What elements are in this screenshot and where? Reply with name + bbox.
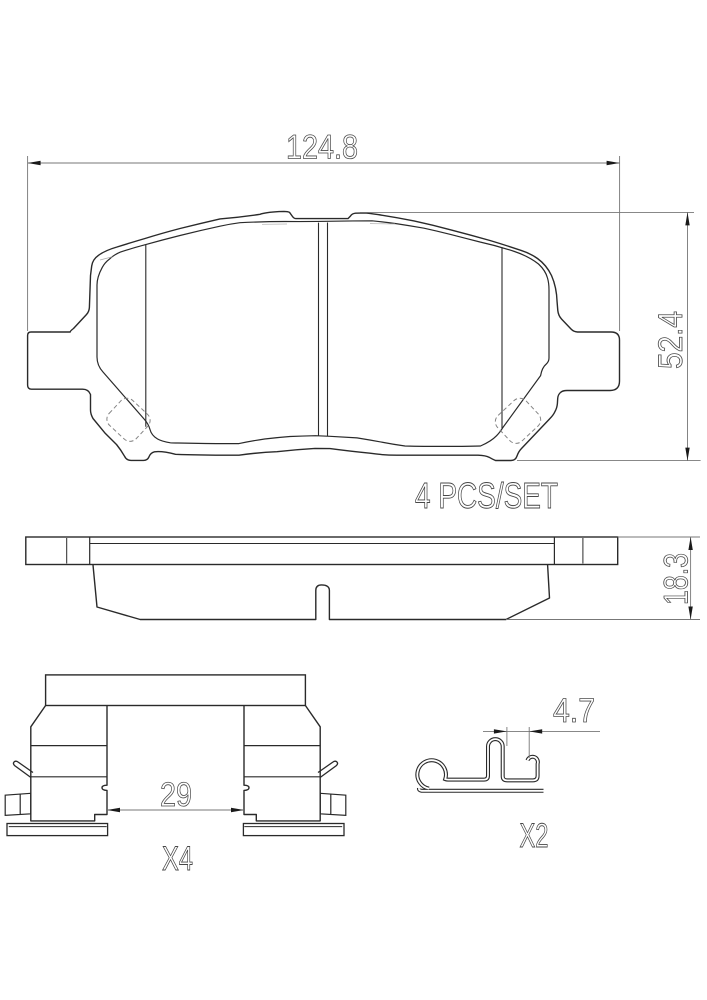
svg-text:X2: X2 — [520, 817, 549, 855]
svg-text:52.4: 52.4 — [652, 311, 690, 369]
svg-text:4.7: 4.7 — [553, 692, 595, 730]
svg-text:29: 29 — [160, 776, 192, 814]
svg-text:4 PCS/SET: 4 PCS/SET — [415, 475, 558, 516]
svg-text:124.8: 124.8 — [286, 129, 358, 167]
svg-text:18.3: 18.3 — [658, 553, 696, 605]
svg-text:X4: X4 — [162, 840, 193, 878]
